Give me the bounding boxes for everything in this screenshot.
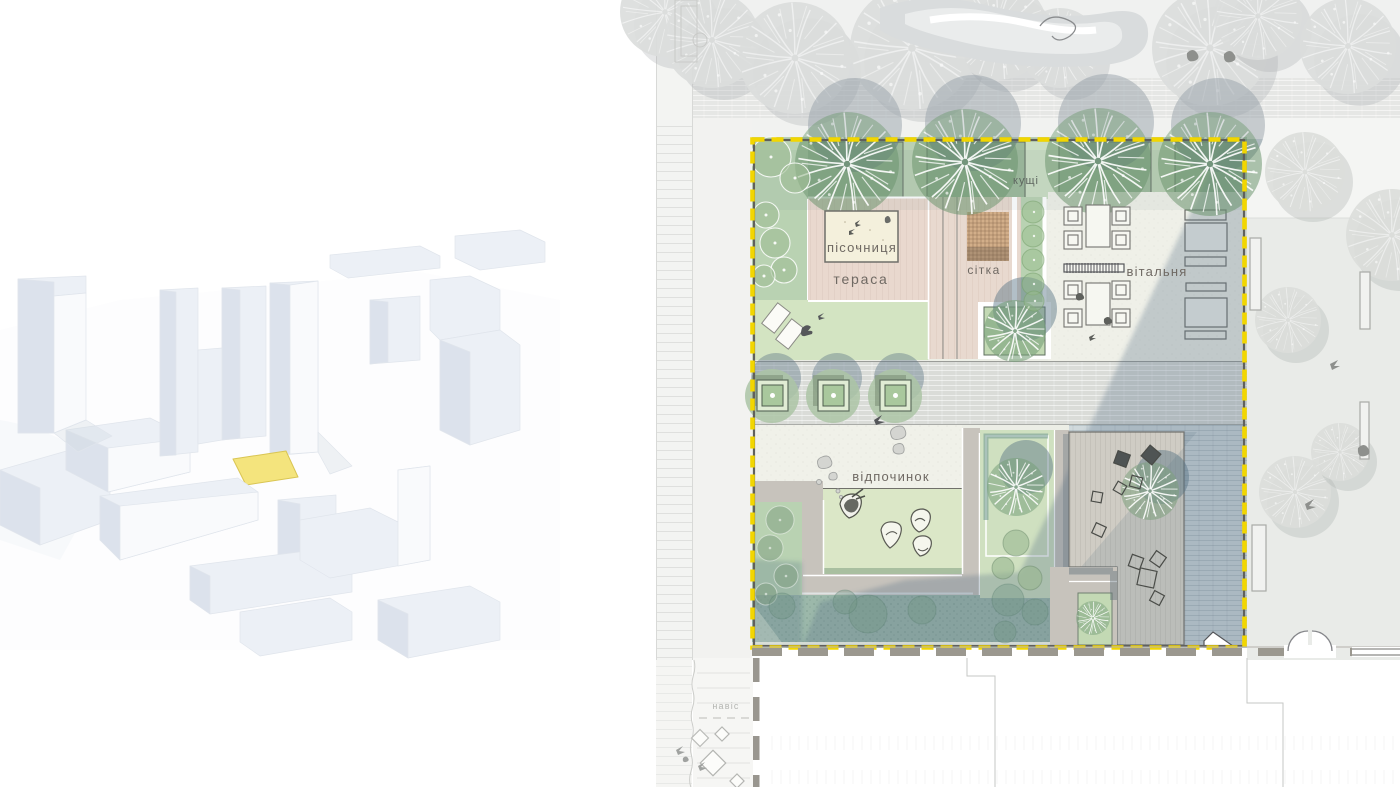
svg-text:тераса: тераса: [833, 271, 888, 287]
svg-text:кущі: кущі: [1013, 175, 1039, 187]
svg-text:вітальня: вітальня: [1126, 264, 1187, 279]
svg-text:пісочниця: пісочниця: [827, 240, 897, 255]
svg-text:сітка: сітка: [967, 263, 1000, 277]
svg-text:відпочинок: відпочинок: [852, 469, 930, 484]
svg-text:навіс: навіс: [712, 701, 739, 711]
